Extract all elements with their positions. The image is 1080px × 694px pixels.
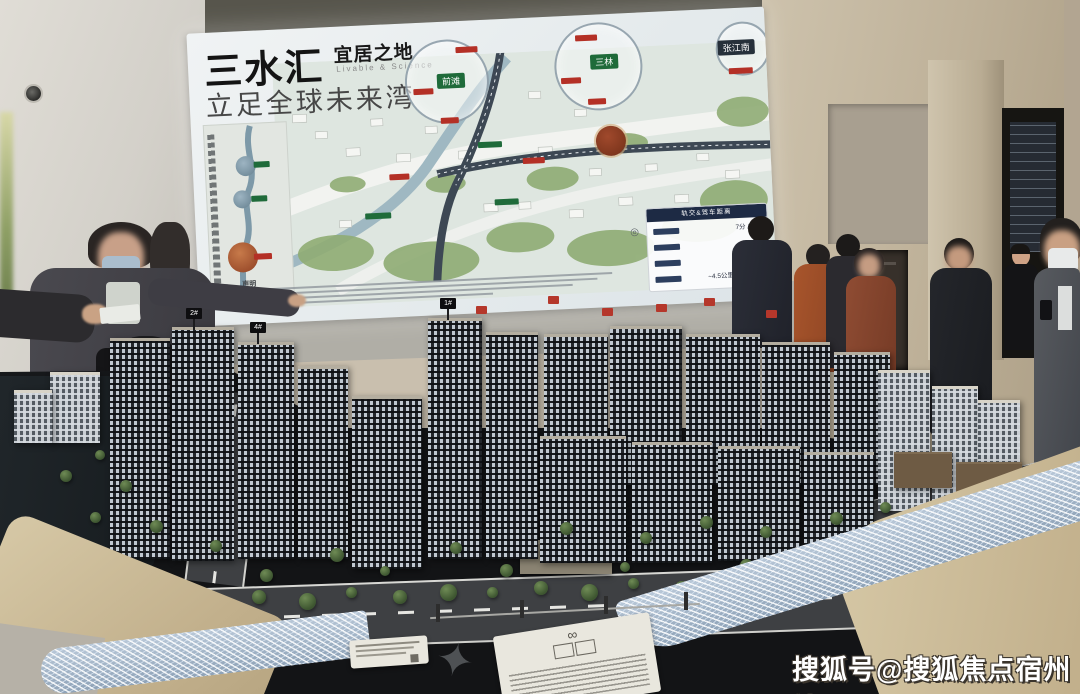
model-tree — [487, 587, 498, 598]
model-tree — [440, 584, 457, 601]
model-tree — [299, 593, 316, 610]
model-tree — [150, 520, 163, 533]
model-info-plaque-small — [349, 635, 429, 668]
barrier-post — [604, 596, 608, 614]
model-tree — [260, 569, 273, 582]
plaque-qr-code — [410, 654, 419, 663]
model-tree — [380, 566, 390, 576]
model-tree — [90, 512, 101, 523]
model-tree — [210, 540, 222, 552]
model-tree — [95, 450, 105, 460]
model-tree — [760, 526, 772, 538]
model-tree — [628, 578, 639, 589]
model-tree — [450, 542, 462, 554]
model-tree — [620, 562, 630, 572]
model-tree — [640, 532, 652, 544]
model-tree — [60, 470, 72, 482]
sales-center-photo: 三水汇 宜居之地 Livable & Science 立足全球未来湾 前滩 三林… — [0, 0, 1080, 694]
barrier-post — [684, 592, 688, 610]
model-tree — [534, 581, 548, 595]
model-tree — [581, 584, 598, 601]
model-tree — [500, 564, 513, 577]
barrier-post — [520, 600, 524, 618]
model-tree — [120, 480, 132, 492]
watermark-text: 搜狐号@搜狐焦点宿州站 — [792, 648, 1080, 694]
model-tree — [830, 512, 843, 525]
plaque-title-box — [575, 639, 597, 656]
model-tree — [346, 587, 357, 598]
plaque-text-line — [356, 652, 406, 657]
model-tree — [700, 516, 713, 529]
plaque-paragraph-lines — [509, 651, 651, 694]
scale-model: 2#4#1# ✦ ∞ — [0, 0, 1080, 694]
barrier-post — [436, 604, 440, 622]
plaque-title-box — [553, 642, 575, 659]
model-tree — [252, 590, 266, 604]
model-tree — [393, 590, 407, 604]
model-tree — [880, 502, 891, 513]
model-tree — [560, 522, 573, 535]
model-tree — [330, 548, 344, 562]
